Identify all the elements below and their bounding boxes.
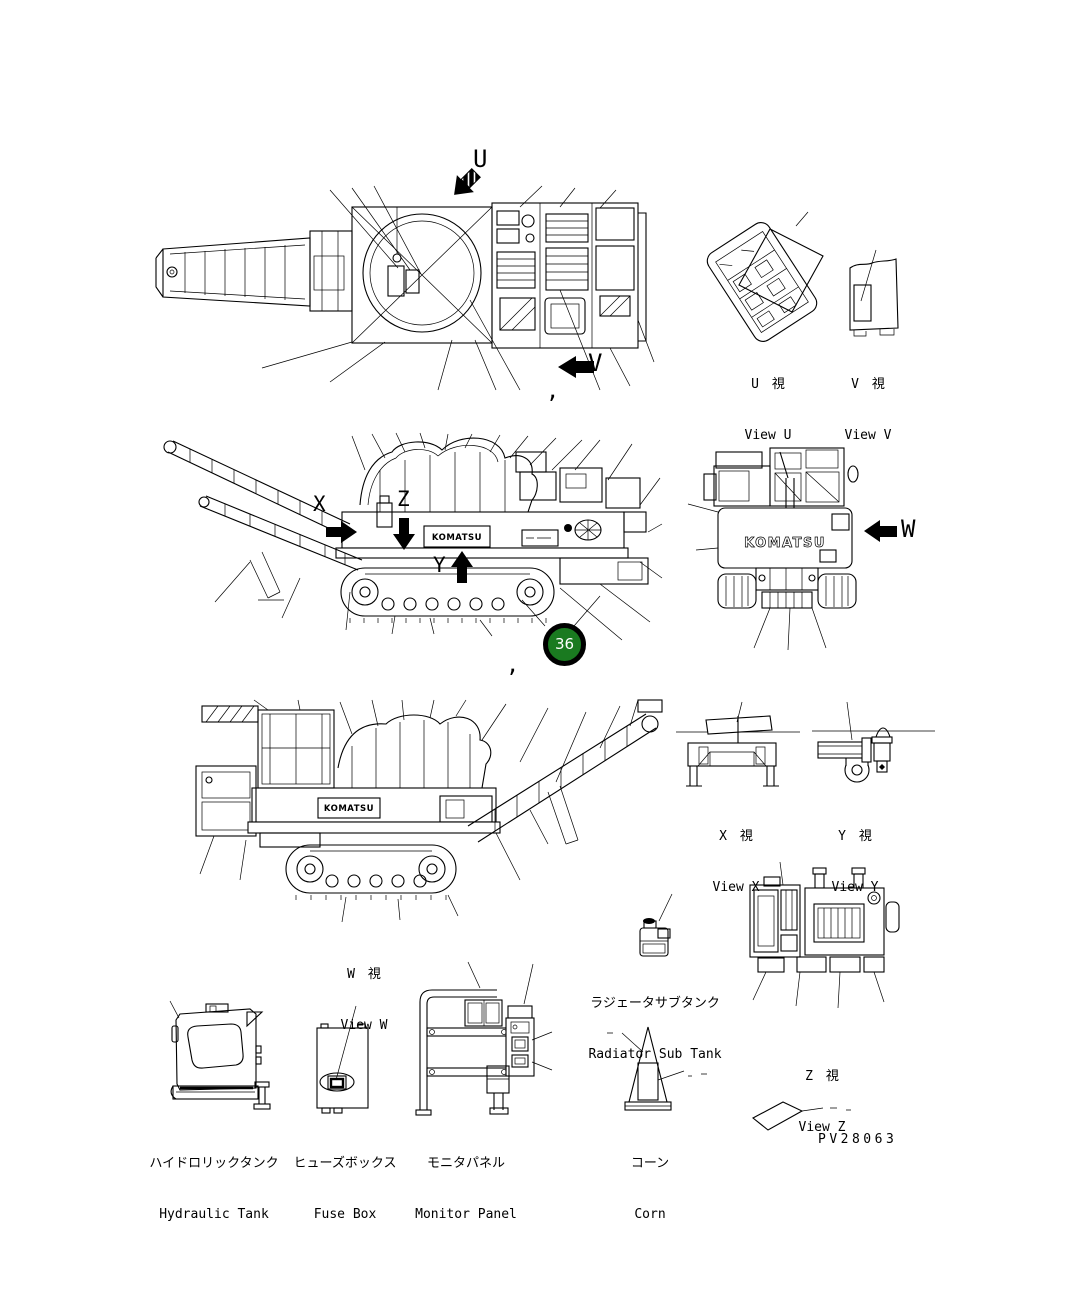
view-x-label: X 視 View X xyxy=(676,794,796,913)
side-view-facing-right-drawing: KOMATSU xyxy=(196,700,662,922)
view-z-label-jp: Z 視 xyxy=(762,1068,882,1085)
view-y-label-en: View Y xyxy=(795,879,915,896)
direction-letter-y: Y xyxy=(433,552,446,578)
brand-logo-side-left: KOMATSU xyxy=(432,533,482,543)
view-y-label-jp: Y 視 xyxy=(795,828,915,845)
comma-middle: , xyxy=(506,656,519,676)
brand-logo-rear: KOMATSU xyxy=(744,536,826,551)
view-y-detail-drawing xyxy=(812,702,935,782)
direction-letter-w: W xyxy=(901,516,915,542)
monitor-panel-drawing xyxy=(416,962,552,1115)
radiator-sub-tank-label-en: Radiator Sub Tank xyxy=(545,1046,765,1063)
direction-letter-z: Z xyxy=(397,486,410,512)
hydraulic-tank-drawing xyxy=(170,1001,270,1109)
radiator-sub-tank-label: ラジェータサブタンク Radiator Sub Tank xyxy=(545,961,765,1080)
corn-label-jp: コーン xyxy=(540,1155,760,1172)
view-u-detail-drawing xyxy=(703,212,823,345)
view-z-direction-arrow-icon xyxy=(393,518,415,550)
corn-label: コーン Corn xyxy=(540,1121,760,1240)
direction-letter-v: V xyxy=(588,350,602,376)
view-w-label: W 視 View W xyxy=(304,932,424,1051)
drawing-number: PV28063 xyxy=(818,1132,897,1147)
view-x-label-jp: X 視 xyxy=(676,828,796,845)
view-v-label: V 視 View V xyxy=(808,342,928,461)
view-v-label-en: View V xyxy=(808,427,928,444)
corn-label-en: Corn xyxy=(540,1206,760,1223)
top-plan-view-drawing xyxy=(156,186,654,390)
parts-diagram-canvas: KOMATSU xyxy=(0,0,1065,1304)
parts-diagram-page: KOMATSU xyxy=(0,0,1065,1304)
brand-logo-side-right: KOMATSU xyxy=(324,804,374,814)
direction-letter-u: U xyxy=(473,146,487,172)
view-w-label-jp: W 視 xyxy=(304,966,424,983)
comma-upper: , xyxy=(546,382,559,402)
rear-view-drawing: KOMATSU xyxy=(688,448,858,650)
radiator-sub-tank-label-jp: ラジェータサブタンク xyxy=(545,995,765,1012)
part-callout-36[interactable]: 36 xyxy=(543,623,586,666)
view-x-label-en: View X xyxy=(676,879,796,896)
view-v-label-jp: V 視 xyxy=(808,376,928,393)
radiator-sub-tank-drawing xyxy=(640,894,672,956)
view-x-detail-drawing xyxy=(676,702,800,786)
direction-letter-x: X xyxy=(313,491,326,517)
view-w-label-en: View W xyxy=(304,1017,424,1034)
view-y-label: Y 視 View Y xyxy=(795,794,915,913)
view-w-direction-arrow-icon xyxy=(864,520,897,542)
view-x-direction-arrow-icon xyxy=(326,521,357,543)
view-v-detail-drawing xyxy=(850,250,898,336)
